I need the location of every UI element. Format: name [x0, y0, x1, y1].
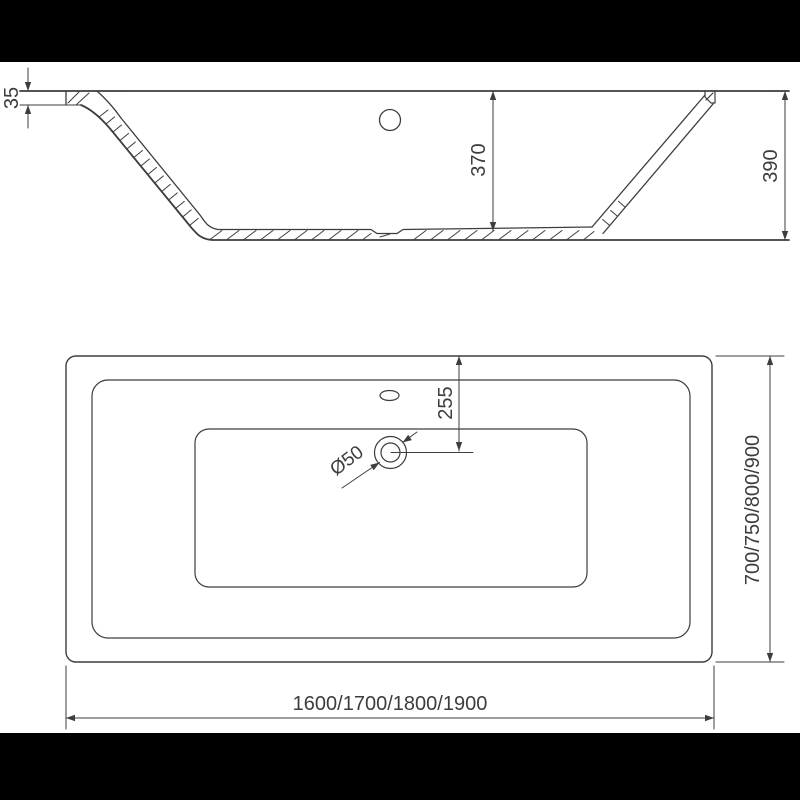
dim-label-width-options: 700/750/800/900	[742, 435, 764, 585]
dim-label-rim-height: 35	[1, 87, 23, 109]
dim-label-overall-height: 390	[760, 149, 782, 182]
drawing-canvas: 35 370 390 255 Ø50 700/750/800/900 1600/…	[0, 0, 800, 800]
letterbox-top	[0, 0, 800, 62]
bathtub-technical-drawing: 35 370 390 255 Ø50 700/750/800/900 1600/…	[0, 0, 800, 800]
dim-label-inner-depth: 370	[468, 143, 490, 176]
dim-label-length-options: 1600/1700/1800/1900	[293, 693, 488, 715]
dim-label-drain-offset: 255	[435, 386, 457, 419]
letterbox-bottom	[0, 733, 800, 800]
